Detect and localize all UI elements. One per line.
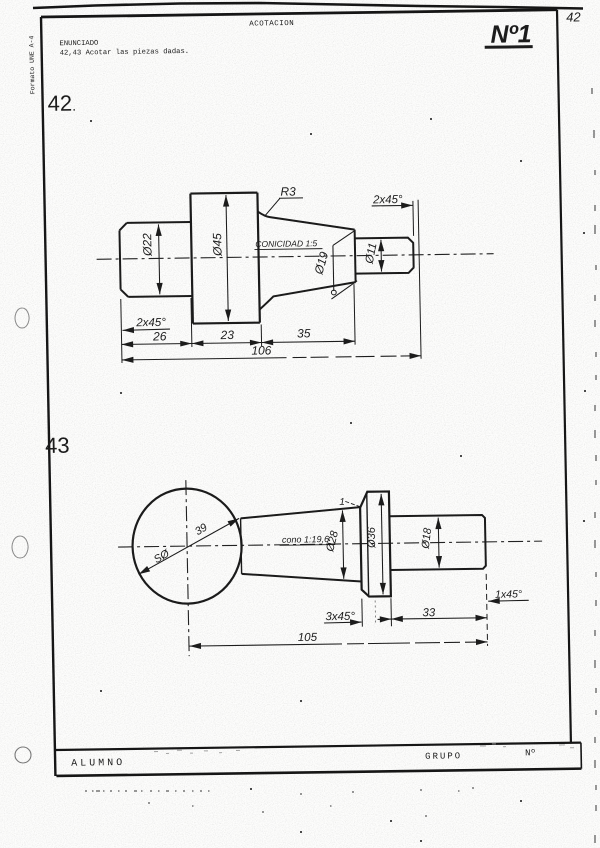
svg-text:33: 33 <box>422 607 436 619</box>
svg-text:R3: R3 <box>280 184 296 198</box>
svg-text:Ø36: Ø36 <box>366 526 378 549</box>
svg-text:42: 42 <box>566 9 582 24</box>
svg-text:cono 1:19,6: cono 1:19,6 <box>282 534 329 545</box>
svg-text:3x45°: 3x45° <box>325 611 355 623</box>
svg-text:26: 26 <box>152 329 167 343</box>
svg-text:23: 23 <box>219 328 234 342</box>
svg-text:Ø45: Ø45 <box>210 233 224 257</box>
svg-text:106: 106 <box>251 343 272 357</box>
svg-text:1x45°: 1x45° <box>495 588 522 600</box>
svg-text:42.: 42. <box>47 91 76 116</box>
svg-text:ACOTACION: ACOTACION <box>249 20 294 29</box>
svg-text:105: 105 <box>298 632 318 644</box>
svg-text:ALUMNO: ALUMNO <box>71 758 125 770</box>
svg-text:43: 43 <box>45 433 70 458</box>
svg-text:Nº1: Nº1 <box>490 20 532 49</box>
svg-text:2x45°: 2x45° <box>135 317 166 329</box>
svg-text:35: 35 <box>297 326 311 340</box>
svg-text:Nº: Nº <box>525 748 536 758</box>
svg-text:CONICIDAD 1:5: CONICIDAD 1:5 <box>255 238 317 249</box>
svg-text:2x45°: 2x45° <box>372 194 403 206</box>
svg-text:Formato UNE A-4: Formato UNE A-4 <box>28 35 36 94</box>
svg-text:GRUPO: GRUPO <box>425 751 462 762</box>
svg-text:1: 1 <box>339 497 345 508</box>
svg-text:ENUNCIADO: ENUNCIADO <box>59 40 98 49</box>
svg-text:Ø22: Ø22 <box>140 233 154 257</box>
